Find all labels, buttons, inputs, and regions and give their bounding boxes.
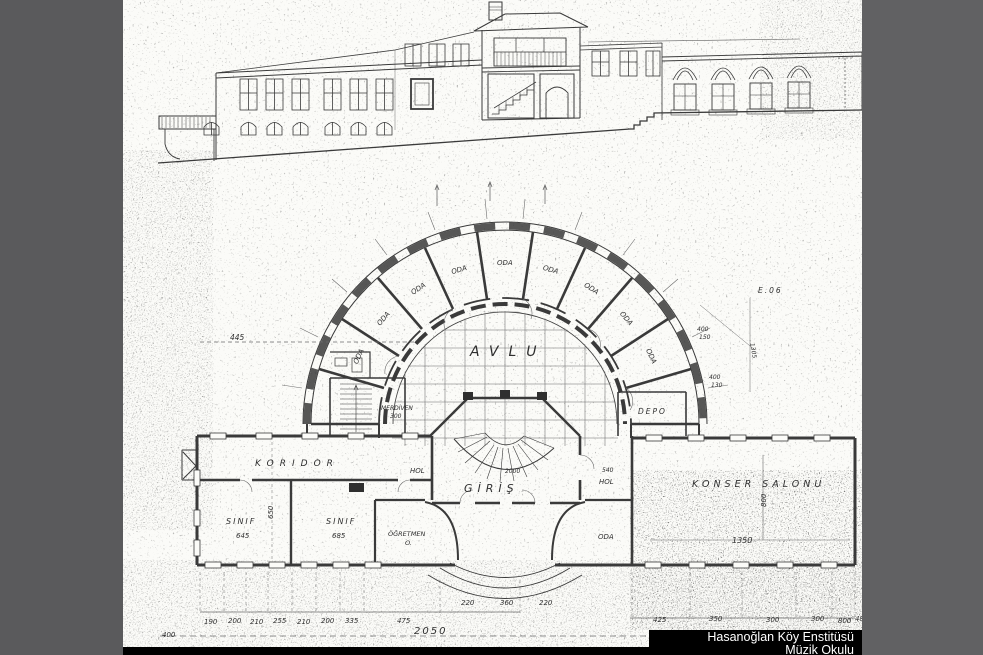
dim-mid: 220 xyxy=(461,599,475,607)
caption-box: Hasanoğlan Köy Enstitüsü Müzik Okulu xyxy=(649,630,862,655)
dim-diag: 130 xyxy=(711,382,723,389)
dim-bottom: 475 xyxy=(397,617,411,625)
dim-bottom-right: 300 xyxy=(766,616,780,624)
classroom-left-label: SINIF xyxy=(226,517,256,526)
dim-first: 400 xyxy=(162,631,176,639)
corridor-dim: 650 xyxy=(267,505,275,519)
dim-left: 445 xyxy=(230,333,245,342)
dim-diag: 150 xyxy=(699,334,711,341)
concert-hall-depth: 800 xyxy=(760,493,768,507)
dim-bottom: 210 xyxy=(297,618,311,626)
concert-hall-label: KONSER SALONU xyxy=(692,479,825,490)
dim-2000: 2000 xyxy=(505,468,520,475)
corridor-label: KORIDOR xyxy=(255,459,339,469)
dim-bottom: 210 xyxy=(250,618,264,626)
scan-noise xyxy=(123,0,862,655)
hall-left-label: HOL xyxy=(410,467,425,475)
dim-bottom: 200 xyxy=(321,617,335,625)
dim-mid: 220 xyxy=(539,599,553,607)
dim-bottom-right: 300 xyxy=(811,615,825,623)
note-top-right: E.06 xyxy=(758,286,783,295)
dim-bottom: 200 xyxy=(228,617,242,625)
storage-label: DEPO xyxy=(638,407,667,416)
dim-bottom: 255 xyxy=(273,617,287,625)
dim-bottom-right: 350 xyxy=(709,615,723,623)
dim-bottom: 335 xyxy=(345,617,359,625)
dim-total: 2050 xyxy=(414,626,447,637)
room-right-label: ODA xyxy=(598,533,614,541)
dim-diag: 400 xyxy=(697,326,709,333)
hall-right-label: HOL xyxy=(599,478,614,486)
scanned-architectural-sheet: AVLU ODA ODA ODA ODA ODA ODA ODA ODA ODA… xyxy=(0,0,983,655)
classroom-left-dim: 645 xyxy=(236,532,250,540)
caption-line2: Müzik Okulu xyxy=(649,644,854,655)
concert-hall-width: 1350 xyxy=(732,536,752,545)
classroom-right-label: SINIF xyxy=(326,517,356,526)
classroom-right-dim: 685 xyxy=(332,532,346,540)
courtyard-label: AVLU xyxy=(469,344,547,360)
drawing-svg: AVLU ODA ODA ODA ODA ODA ODA ODA ODA ODA… xyxy=(0,0,983,655)
dim-diag: 400 xyxy=(709,374,721,381)
viewer-left-bar xyxy=(0,0,123,655)
dim-bottom: 190 xyxy=(204,618,218,626)
viewer-right-bar xyxy=(862,0,983,655)
dim-540: 540 xyxy=(602,467,614,474)
dim-mid: 360 xyxy=(500,599,514,607)
radial-room-label: ODA xyxy=(497,259,513,267)
entrance-label: GİRİŞ xyxy=(464,482,519,495)
dim-bottom-right: 425 xyxy=(653,616,667,624)
dim-bottom-right: 800 xyxy=(838,617,852,625)
